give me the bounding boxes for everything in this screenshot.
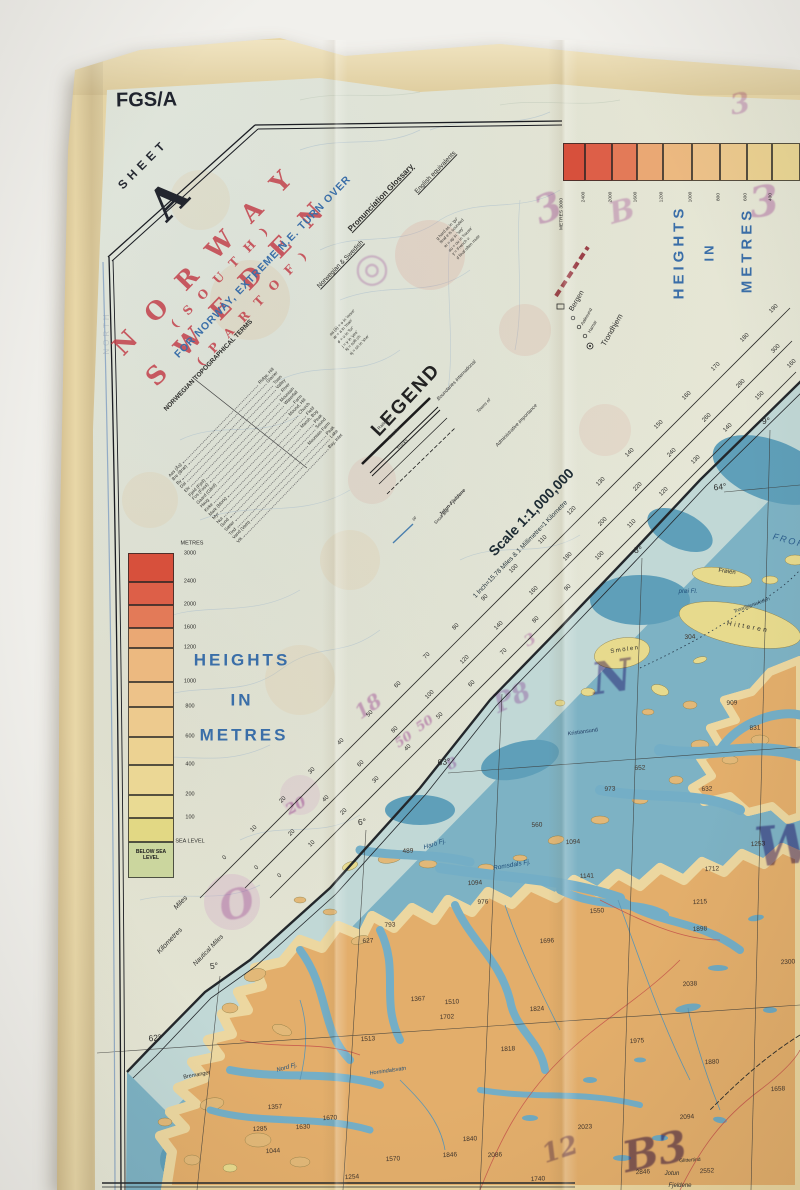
elevation-label: 1200 (661, 192, 666, 203)
spot-height: 1818 (501, 1046, 516, 1053)
spot-height: 1570 (386, 1156, 401, 1163)
handwritten-mark: B3 (619, 1125, 691, 1180)
spot-height: 1254 (345, 1174, 360, 1181)
spot-height: 1840 (463, 1136, 478, 1143)
elevation-band (612, 143, 637, 181)
elevation-label: 200 (185, 792, 194, 798)
spot-height: 1550 (590, 908, 605, 915)
map-photo: FGS/A SHEET A N O R W A Y ( S O U T H ) … (0, 0, 800, 1190)
elevation-label: 1200 (184, 645, 196, 651)
spot-height: 1670 (323, 1115, 338, 1122)
spot-height: 1898 (693, 926, 708, 933)
elevation-band (563, 143, 585, 181)
elevation-label: 400 (770, 193, 775, 201)
graticule-label: 9° (762, 416, 771, 425)
spot-height: 2023 (578, 1124, 593, 1131)
elevation-label: 100 (185, 815, 194, 821)
spot-height: 2038 (683, 981, 698, 988)
handwritten-mark: 3 (747, 179, 782, 225)
spot-height: 1141 (580, 873, 594, 880)
elevation-label: METRES 3000 (561, 198, 566, 230)
spot-height: 1215 (693, 899, 708, 906)
spot-height: 1846 (443, 1152, 458, 1159)
elevation-band (585, 143, 612, 181)
elevation-band (637, 143, 663, 181)
spot-height: 1367 (411, 996, 426, 1003)
spot-height: 1513 (361, 1036, 376, 1043)
spot-height: 652 (634, 765, 645, 772)
handwritten-mark: W (752, 815, 800, 874)
spot-height: 2086 (488, 1152, 503, 1159)
showthrough-text: NORTH (103, 311, 111, 354)
place-name: Fjeldene (668, 1183, 691, 1189)
elevation-label: 1000 (690, 192, 695, 203)
graticule-label: 6° (358, 817, 367, 826)
spot-height: 489 (402, 848, 413, 855)
elevation-band (720, 143, 747, 181)
spot-height: 1094 (566, 839, 581, 846)
elevation-label: 600 (745, 193, 750, 201)
spot-height: 304 (684, 634, 695, 641)
spot-height: 831 (749, 725, 760, 732)
spot-height: 793 (384, 922, 395, 929)
elevation-band (663, 143, 692, 181)
elevation-label: 600 (185, 734, 194, 740)
spot-height: 1880 (705, 1059, 720, 1066)
spot-height: 560 (531, 822, 542, 829)
elevation-label: 3000 (184, 551, 196, 557)
spot-height: 632 (701, 786, 712, 793)
spot-height: 909 (726, 700, 737, 707)
spot-height: 2552 (700, 1168, 715, 1175)
elevation-label: 2000 (184, 602, 196, 608)
elevation-label: 1000 (184, 679, 196, 685)
spot-height: 1975 (630, 1038, 645, 1045)
elevation-label: SEA LEVEL (175, 839, 204, 845)
handwritten-mark: N (589, 653, 635, 702)
spot-height: 1094 (468, 880, 483, 887)
spot-height: 627 (362, 938, 373, 945)
spot-height: 1357 (268, 1104, 283, 1111)
spot-height: 1696 (540, 938, 555, 945)
graticule-label: 8° (634, 545, 643, 554)
handwritten-mark: ◎ (355, 248, 390, 288)
spot-height: 973 (604, 786, 615, 793)
place-name: prøi Fl. (679, 589, 698, 595)
graticule-label: 5° (210, 961, 219, 970)
graticule-label: 64° (713, 482, 727, 492)
spot-height: 1044 (266, 1148, 281, 1155)
elevation-unit: METRES (181, 541, 204, 547)
elevation-label: 2400 (583, 192, 588, 203)
elevation-label: 1600 (184, 625, 196, 631)
spot-height: 1702 (440, 1014, 455, 1021)
elevation-band (772, 143, 800, 181)
labels-layer: FGS/A SHEET A N O R W A Y ( S O U T H ) … (0, 0, 800, 1190)
elevation-label: 800 (185, 704, 194, 710)
elevation-label: 800 (718, 193, 723, 201)
spot-height: 1658 (771, 1086, 786, 1093)
elevation-band (692, 143, 720, 181)
spot-height: 1712 (705, 866, 720, 873)
elevation-label: 400 (185, 762, 194, 768)
spot-height: 1285 (253, 1126, 268, 1133)
elevation-label: 1600 (635, 192, 640, 203)
spot-height: 976 (477, 899, 488, 906)
elevation-label: 2000 (610, 192, 615, 203)
graticule-label: 62° (148, 1033, 162, 1043)
spot-height: 1630 (296, 1124, 311, 1131)
spot-height: 1740 (531, 1176, 546, 1183)
spot-height: 1510 (445, 999, 460, 1006)
spot-height: 2300 (781, 959, 796, 966)
elevation-label: 2400 (184, 579, 196, 585)
spot-height: 1824 (530, 1006, 545, 1013)
